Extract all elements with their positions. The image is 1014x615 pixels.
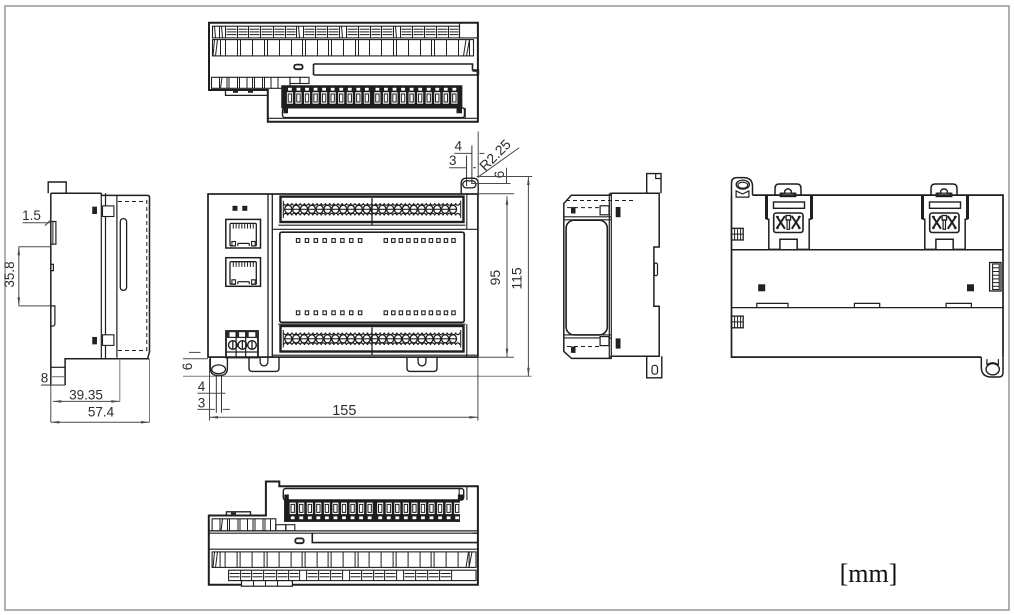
svg-text:1.5: 1.5 (22, 208, 41, 223)
svg-text:[mm]: [mm] (840, 559, 898, 588)
svg-text:35.8: 35.8 (2, 261, 17, 287)
svg-text:95: 95 (487, 270, 503, 286)
svg-text:155: 155 (332, 403, 356, 419)
svg-text:4: 4 (198, 379, 206, 394)
svg-text:4: 4 (454, 139, 462, 154)
svg-text:8: 8 (41, 371, 49, 386)
svg-text:3: 3 (198, 396, 206, 411)
svg-text:6: 6 (492, 171, 507, 179)
svg-text:3: 3 (449, 153, 457, 168)
svg-text:6: 6 (180, 363, 195, 371)
svg-text:57.4: 57.4 (88, 405, 115, 420)
svg-text:39.35: 39.35 (69, 388, 103, 403)
svg-text:115: 115 (508, 267, 524, 290)
